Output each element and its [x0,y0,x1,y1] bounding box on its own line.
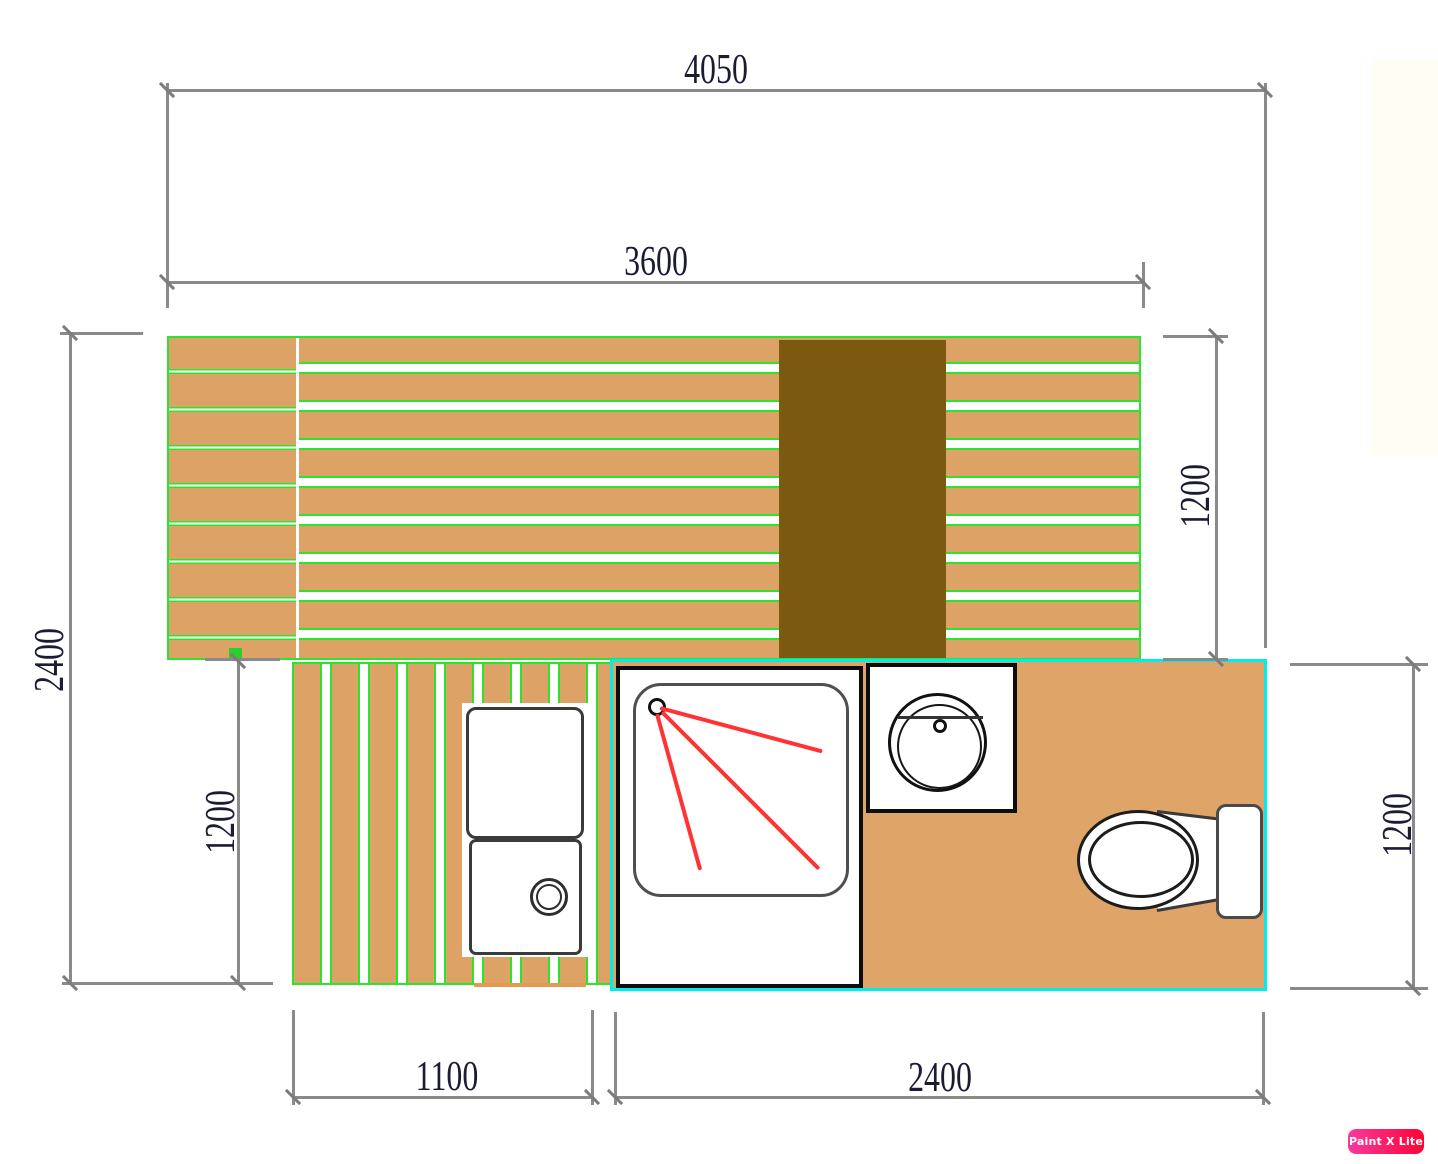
dim-line [591,1010,594,1105]
board-overlay [779,340,946,658]
cabinet-base-line [474,983,586,987]
bathroom-outline [610,659,1267,991]
dim-label-deck-width: 3600 [624,241,688,283]
watermark-badge: Paint X Lite [1348,1129,1424,1154]
dim-line [1290,987,1428,990]
dim-line [292,1010,295,1105]
dim-label-deck-depth-right: 1200 [1175,464,1217,528]
ext-line [205,658,280,661]
dim-line [1412,664,1415,988]
sink-cabinet-top [466,707,584,839]
faint-artifact [1372,58,1438,456]
dim-line [167,89,1265,92]
dim-line [1290,663,1428,666]
dim-line [1264,83,1267,648]
sink-drain-inner [536,884,562,910]
dim-label-lower-deck-width: 1100 [416,1056,479,1098]
dim-line [166,83,169,308]
dim-line [1262,1012,1265,1105]
dim-label-overall-depth: 2400 [29,628,71,692]
deck-top-outline [167,336,1141,660]
dim-label-overall-width: 4050 [684,49,748,91]
dim-label-lower-deck-depth: 1200 [200,790,242,854]
dim-line [615,1096,1263,1099]
dim-label-bathroom-width: 2400 [908,1057,972,1099]
dim-line [293,1096,592,1099]
floor-plan-canvas: 4050 3600 2400 1200 1200 1100 2400 1200 … [0,0,1438,1164]
dim-line [614,1012,617,1105]
dim-line [167,281,1143,284]
dim-line [69,333,72,983]
dim-line [237,661,240,983]
dim-line [1215,336,1218,659]
